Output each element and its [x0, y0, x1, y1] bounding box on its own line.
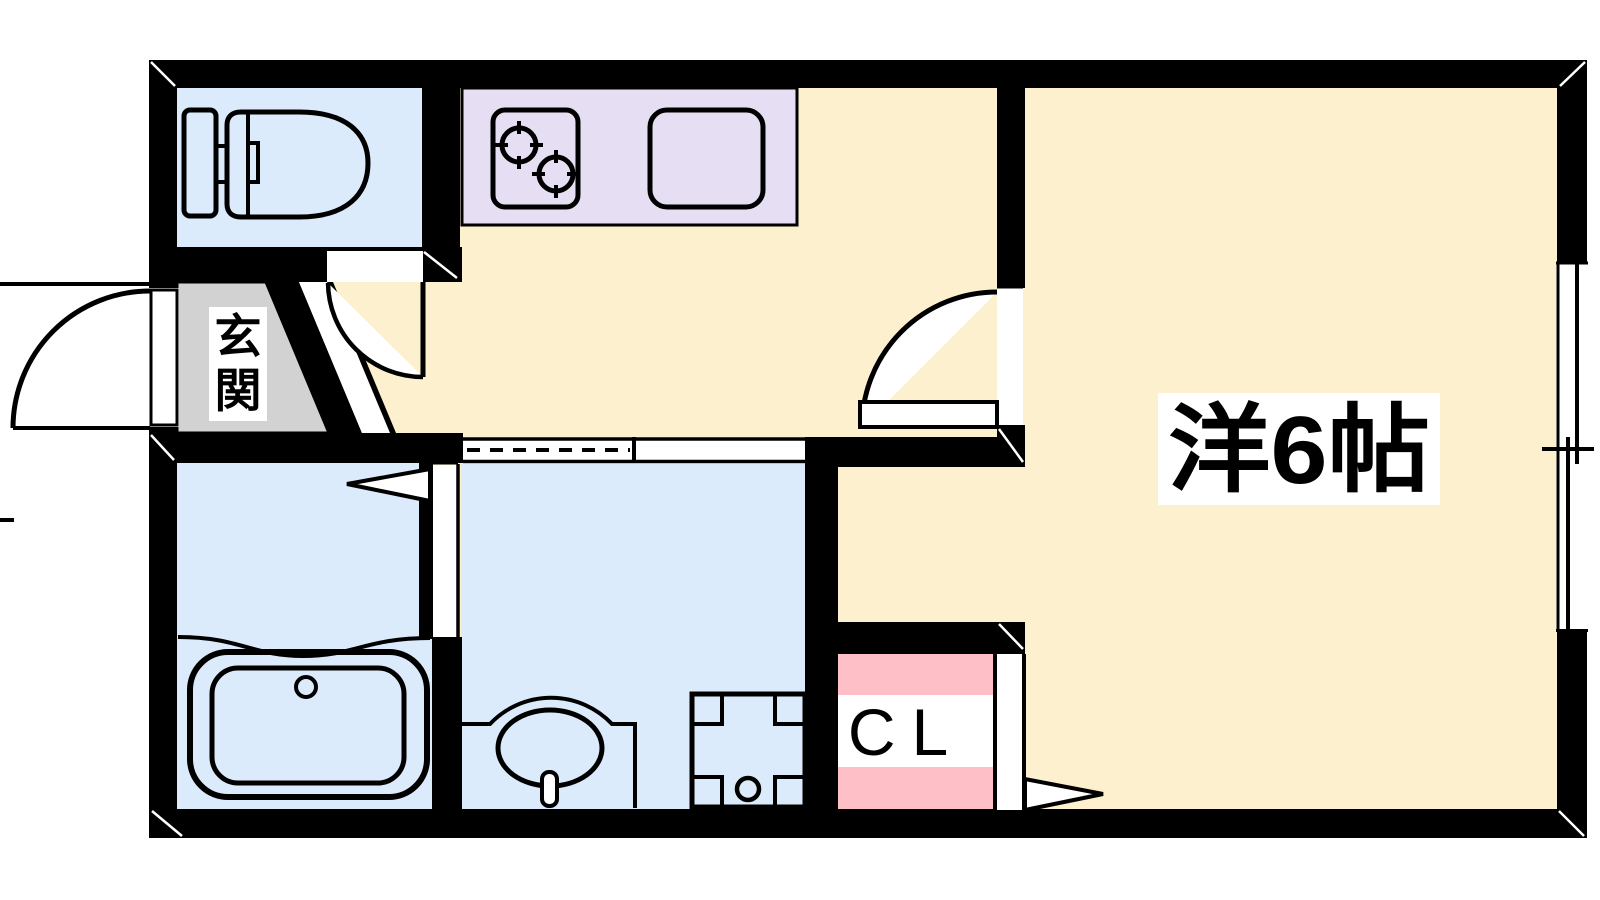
genkan-label: 玄 関: [209, 307, 267, 421]
wall-nook-top: [805, 437, 1025, 467]
floor-plan-drawing: 玄 関 洋6帖 CL: [0, 0, 1600, 900]
genkan-label-char-2: 関: [215, 364, 262, 417]
floor-plan-page: 玄 関 洋6帖 CL: [0, 0, 1600, 900]
closet-label: CL: [838, 695, 993, 769]
wall-closet-top: [805, 622, 1025, 654]
wall-toilet-right: [422, 88, 460, 250]
closet-label-text: CL: [848, 695, 964, 769]
westroom-door-leaf: [860, 402, 997, 427]
wall-kitchen-westroom: [997, 60, 1025, 288]
entrance-door-leaf: [151, 290, 177, 425]
wall-top: [149, 60, 1587, 88]
wall-below-genkan: [149, 433, 463, 463]
wall-bottom: [149, 809, 1587, 838]
wall-bath-washroom: [432, 637, 462, 809]
washroom-sliding-door: [463, 437, 805, 464]
genkan-label-char-1: 玄: [215, 310, 262, 363]
bathroom: [177, 463, 432, 809]
western-room-label: 洋6帖: [1158, 393, 1440, 505]
western-room-label-text: 洋6帖: [1168, 397, 1430, 504]
